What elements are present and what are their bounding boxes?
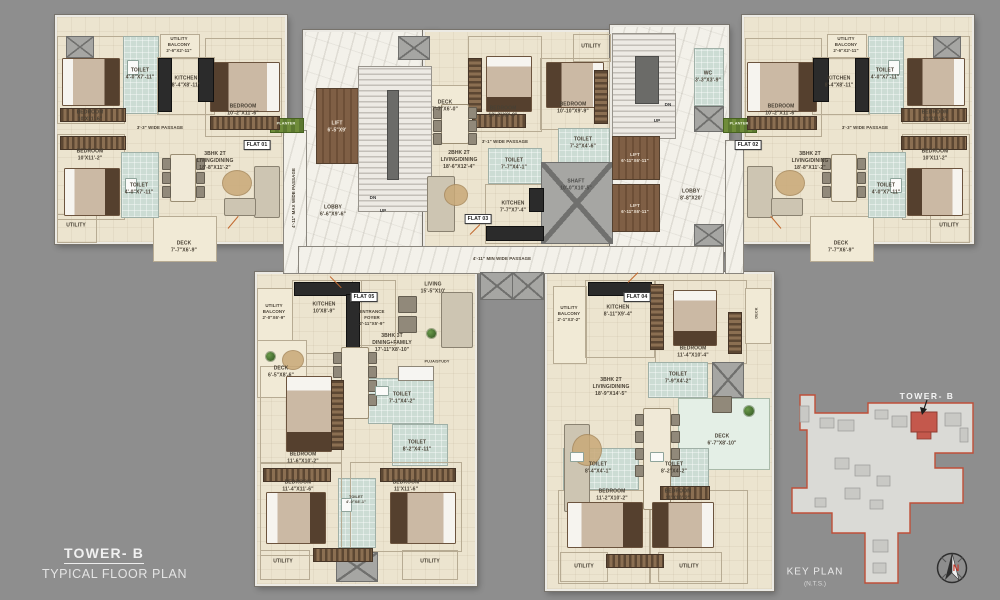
room-label: 2BHK 2T LIVING/DINING 18'-6"X12'-4": [441, 150, 478, 170]
wardrobe: [747, 116, 817, 130]
keyplan-unit-highlight: [917, 432, 931, 439]
north-label: N: [953, 563, 960, 573]
wardrobe: [313, 548, 373, 562]
page-subtitle: TYPICAL FLOOR PLAN: [42, 567, 187, 581]
room-label: LIFT 6'-11"X6'-11": [621, 152, 649, 164]
floor-plan-canvas: BEDROOM 10'X11'-6" TOILET 4'-0"X7'-11" U…: [0, 0, 1000, 600]
room-label: BEDROOM 11'X10'-2": [665, 488, 692, 502]
room-label: BEDROOM 10'X11'-6": [77, 109, 104, 123]
armchair: [398, 316, 417, 333]
room-label: KITCHEN 7'-7"X7'-4": [500, 200, 526, 214]
room-label: DECK 6'-5"X8'-6": [268, 365, 294, 379]
stair-rail: [387, 90, 399, 180]
bed: [286, 376, 332, 452]
room-label: BEDROOM 11'X11'-6": [393, 479, 420, 493]
room-label: TOILET 4'-0"X8'-1": [346, 495, 366, 505]
page-title: TOWER- B: [64, 545, 144, 564]
deck-flat01: [153, 216, 217, 262]
rug: [775, 170, 805, 196]
room-label: 3'-1" WIDE PASSAGE: [482, 139, 528, 145]
sofa: [747, 166, 773, 218]
room-label: UTILITY BALCONY 2'-0"X6'-9": [263, 303, 286, 321]
wardrobe: [650, 284, 664, 350]
room-label: SHAFT 10'-0"X10'-5": [560, 178, 592, 192]
rug: [222, 170, 252, 196]
room-label: TOILET 7'-2"X4'-6": [570, 136, 596, 150]
rug: [444, 184, 468, 206]
room-label: 3BHK 2T LIVING/DINING 18'-9"X14'-5": [593, 377, 630, 397]
flat-tag: FLAT 02: [735, 140, 762, 150]
kitchen-counter: [486, 226, 544, 241]
corridor-label: 4'-11" MAX WIDE PASSAGE: [291, 168, 297, 228]
chair: [635, 465, 644, 477]
room-label: UTILITY BALCONY 2'-6"X2'-11": [166, 36, 191, 54]
chair: [333, 366, 342, 378]
shaft-hatch: [541, 162, 613, 244]
puja-cabinet: [398, 366, 434, 381]
chair: [822, 186, 831, 198]
room-label: BEDROOM 10'-2"X11'-6": [227, 103, 259, 117]
chair: [196, 172, 205, 184]
bed: [486, 56, 532, 112]
room-label: LIFT 6'-11"X6'-11": [621, 203, 649, 215]
armchair: [398, 296, 417, 313]
flat-tag: FLAT 01: [244, 140, 271, 150]
chair: [433, 133, 442, 145]
stair-direction-label: UP: [380, 208, 386, 214]
room-label: BEDROOM 10'X11'-6": [922, 109, 949, 123]
stair-rail: [635, 56, 659, 104]
room-label: BEDROOM 11'-4"X10'-4": [677, 345, 709, 359]
kitchen-counter: [855, 58, 869, 112]
room-label: 3'-3" WIDE PASSAGE: [137, 125, 183, 131]
room-label: LIFT 6'-5"X9': [328, 120, 347, 134]
room-label: 3BHK 2T LIVING/DINING 18'-8"X11'-2": [197, 151, 234, 171]
bed: [907, 168, 963, 216]
room-label: TOILET 7'-9"X4'-2": [665, 371, 691, 385]
planter-label: PLANTER: [730, 121, 749, 126]
room-label: TOILET 4'-0"X7'-11": [872, 182, 901, 196]
service-hatch: [712, 362, 744, 398]
room-label: UTILITY BALCONY 2'-1"X3'-2": [558, 305, 581, 323]
stair-direction-label: UP: [654, 118, 660, 124]
room-label: 3'-3" WIDE PASSAGE: [842, 125, 888, 131]
room-label: KITCHEN 8'-4"X8'-11": [825, 75, 854, 89]
room-label: UTILITY: [939, 223, 959, 230]
chair: [822, 172, 831, 184]
stair-direction-label: DN: [665, 102, 672, 108]
bed: [266, 492, 326, 544]
room-label: DECK 7'-7"X6'-9": [828, 240, 854, 254]
service-hatch: [398, 36, 430, 60]
corridor-vertical-right: [725, 140, 744, 274]
room-label: UTILITY: [273, 559, 293, 566]
sofa: [254, 166, 280, 218]
room-label: BEDROOM 10'-2"X9'-9": [489, 105, 518, 119]
chair: [671, 414, 680, 426]
room-label: UTILITY: [574, 564, 594, 571]
corridor-label: 4'-11" MIN WIDE PASSAGE: [473, 256, 531, 262]
room-label: KITCHEN 8'-4"X8'-11": [172, 75, 201, 89]
room-label: BEDROOM 10'X11'-2": [922, 148, 949, 162]
plant: [427, 329, 436, 338]
room-label: BEDROOM 11'-2"X10'-2": [596, 488, 628, 502]
chair: [368, 352, 377, 364]
keyplan-scale-note: (N.T.S.): [804, 581, 826, 588]
sofa: [441, 292, 473, 348]
wardrobe: [331, 380, 344, 450]
bed: [567, 502, 643, 548]
room-utility-balcony: [553, 286, 587, 364]
room-label: BEDROOM 11'-6"X10'-2": [287, 451, 319, 465]
chair: [433, 120, 442, 132]
service-hatch: [694, 106, 724, 132]
room-label: UTILITY: [66, 223, 86, 230]
room-label: BEDROOM 10'-10"X9'-9": [557, 101, 589, 115]
room-label: DECK 6'-7"X8'-10": [708, 433, 737, 447]
toilet-fixture: [375, 386, 389, 396]
chair: [162, 158, 171, 170]
chair: [635, 448, 644, 460]
room-label: LOBBY 8'-8"X20': [680, 188, 702, 202]
room-label: KITCHEN 8'-11"X9'-4": [604, 304, 633, 318]
room-label: WC 3'-3"X3'-9": [695, 70, 721, 84]
plant: [266, 352, 275, 361]
room-label: PUJA/STUDY: [424, 359, 449, 364]
bed: [390, 492, 456, 544]
room-label: DECK 7'-7"X6'-9": [171, 240, 197, 254]
deck-flat02: [810, 216, 874, 262]
chair: [635, 431, 644, 443]
chair: [857, 186, 866, 198]
chair: [196, 186, 205, 198]
kitchen-counter: [346, 294, 360, 350]
kitchen-counter: [158, 58, 172, 112]
room-label: BEDROOM 11'-4"X11'-6": [282, 479, 313, 493]
chair: [162, 172, 171, 184]
room-label: 3BHK 2T LIVING/DINING 18'-8"X11'-2": [792, 151, 829, 171]
plant: [744, 406, 754, 416]
chair: [468, 120, 477, 132]
room-label: LIVING 15'-5"X10': [421, 281, 446, 295]
chair: [857, 172, 866, 184]
sofa: [224, 198, 256, 216]
room-label: DECK: [754, 307, 759, 318]
planter-label: PLANTER: [277, 121, 296, 126]
deck-chair: [712, 396, 732, 413]
dining-table: [341, 347, 369, 419]
room-label: LOBBY 6'-6"X9'-6": [320, 204, 346, 218]
chair: [857, 158, 866, 170]
flat-tag: FLAT 03: [465, 214, 492, 224]
room-label: TOILET 8'-2"X4'-11": [403, 439, 432, 453]
bed: [64, 168, 120, 216]
room-label: TOILET 8'-2"X4'-2": [661, 461, 687, 475]
room-label: TOILET 4'-0"X7'-11": [125, 182, 154, 196]
chair: [671, 431, 680, 443]
bed: [907, 58, 965, 106]
keyplan-unit-highlight: [911, 412, 937, 432]
wardrobe: [606, 554, 664, 568]
room-label: UTILITY BALCONY 2'-6"X2'-11": [833, 36, 858, 54]
wardrobe: [468, 58, 482, 112]
room-label: ENTRANCE FOYER 2'-11"X5'-9": [359, 309, 384, 327]
service-hatch: [933, 36, 961, 58]
room-label: UTILITY: [581, 44, 601, 51]
room-label: BEDROOM 10'-2"X11'-6": [765, 103, 797, 117]
room-label: 3BHK 3T DINING+FAMILY 17'-11"X8'-10": [372, 333, 412, 353]
service-hatch: [66, 36, 94, 58]
service-hatch: [694, 224, 724, 246]
room-label: TOILET 7'-1"X4'-2": [389, 391, 415, 405]
room-label: KITCHEN 10'X8'-9": [313, 301, 336, 315]
room-label: UTILITY: [679, 564, 699, 571]
sofa: [771, 198, 803, 216]
wardrobe: [728, 312, 742, 354]
chair: [468, 133, 477, 145]
chair: [468, 107, 477, 119]
room-label: TOILET 4'-0"X7'-11": [871, 67, 900, 81]
chair: [368, 366, 377, 378]
dining-table: [170, 154, 196, 202]
chair: [162, 186, 171, 198]
chair: [635, 414, 644, 426]
service-hatch: [480, 272, 514, 300]
room-label: TOILET 4'-0"X7'-11": [126, 67, 155, 81]
toilet-fixture: [570, 452, 584, 462]
room-label: UTILITY: [420, 559, 440, 566]
bed: [62, 58, 120, 106]
keyplan-caption: KEY PLAN: [787, 567, 844, 578]
dining-table: [831, 154, 857, 202]
flat-tag: FLAT 04: [624, 292, 651, 302]
bed: [652, 502, 714, 548]
service-hatch: [512, 272, 544, 300]
kitchen-counter: [198, 58, 214, 102]
chair: [671, 448, 680, 460]
flat-tag: FLAT 05: [351, 292, 378, 302]
room-label: DECK 7'-7"X6'-0": [432, 99, 458, 113]
bed: [673, 290, 717, 346]
room-label: TOILET 8'-4"X4'-1": [585, 461, 611, 475]
room-label: BEDROOM 10'X11'-2": [77, 148, 104, 162]
stair-direction-label: DN: [370, 195, 377, 201]
keyplan-map: [775, 368, 1000, 600]
kitchen-counter: [529, 188, 544, 212]
wardrobe: [594, 70, 608, 124]
chair: [333, 352, 342, 364]
keyplan-tower-label: TOWER- B: [900, 391, 955, 401]
room-label: TOILET 7'-7"X4'-1": [501, 157, 527, 171]
wardrobe: [210, 116, 280, 130]
